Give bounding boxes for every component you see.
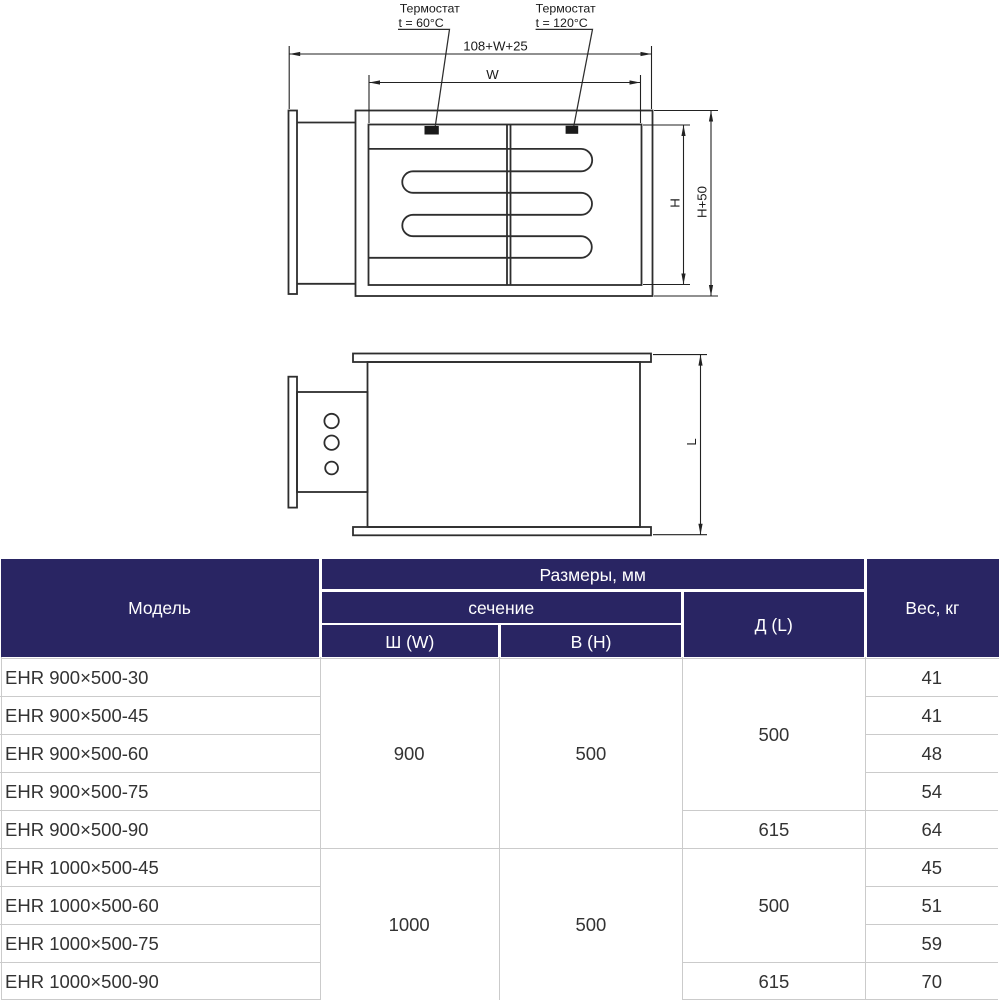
svg-text:Термостат: Термостат [536,2,596,16]
svg-text:H: H [668,198,683,208]
svg-text:H+50: H+50 [695,186,710,218]
svg-text:Термостат: Термостат [400,2,460,16]
svg-text:t = 60°C: t = 60°C [399,16,444,30]
svg-text:108+W+25: 108+W+25 [463,39,528,54]
svg-text:t = 120°C: t = 120°C [536,16,588,30]
svg-text:W: W [486,67,499,82]
svg-text:L: L [684,438,699,445]
